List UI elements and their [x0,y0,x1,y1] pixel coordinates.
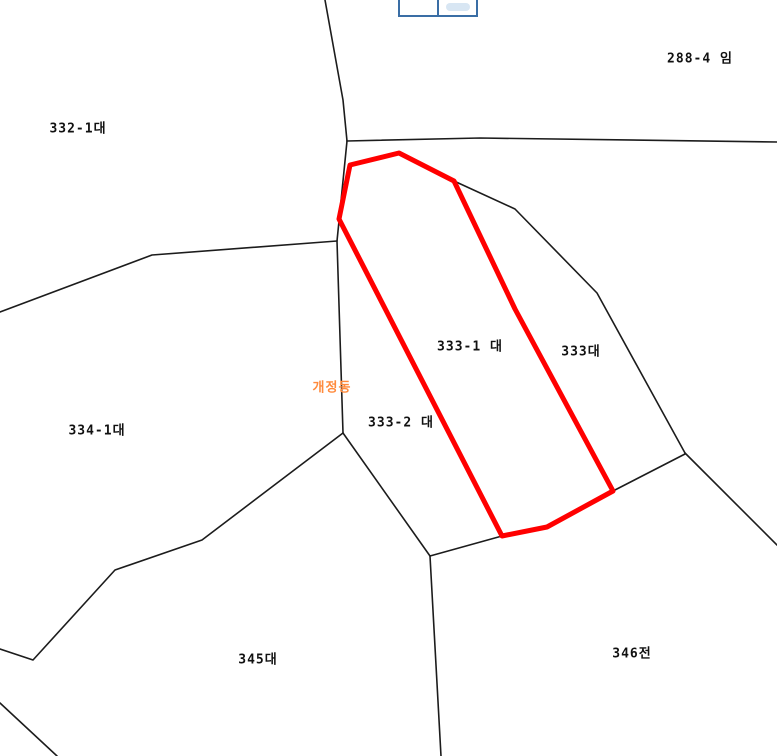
parcel-boundary-line [613,454,685,491]
parcel-label-346: 346전 [612,643,651,662]
parcel-label-345: 345대 [238,649,277,668]
button-highlight-icon [446,3,470,11]
parcel-boundary-line [430,536,502,556]
parcel-boundary-line [0,433,343,660]
parcel-boundary-line [325,0,347,141]
map-toolbar [398,0,478,17]
district-label-gaejeong-dong: 개정동 [313,377,352,396]
parcel-label-333-1: 333-1 대 [437,336,503,355]
map-control-button-right[interactable] [437,0,478,17]
parcel-label-288-4: 288-4 임 [667,48,733,67]
parcel-boundary-line [685,453,777,545]
map-control-button-left[interactable] [398,0,439,17]
parcel-boundaries-layer [0,0,777,756]
parcel-boundary-line [0,241,337,312]
cadastral-map-canvas[interactable]: 288-4 임 332-1대 333-1 대 333대 333-2 대 334-… [0,0,777,756]
parcel-label-332-1: 332-1대 [49,118,106,137]
parcel-label-333: 333대 [561,341,600,360]
parcel-label-333-2: 333-2 대 [368,412,434,431]
parcel-boundary-line [0,703,57,756]
parcel-label-334-1: 334-1대 [68,420,125,439]
parcel-boundary-line [343,433,441,756]
parcel-boundary-line [347,138,777,142]
